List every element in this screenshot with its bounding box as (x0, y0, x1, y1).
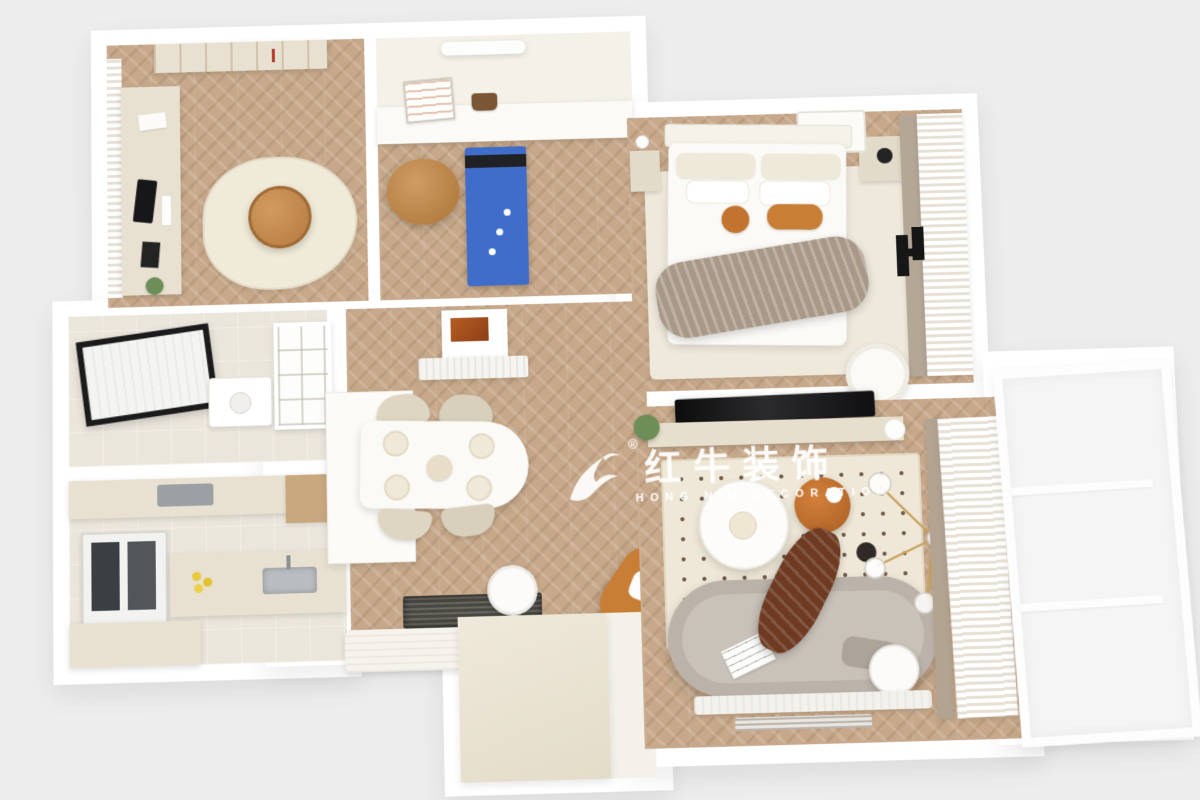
dining-chair (440, 503, 497, 539)
double-bed (663, 124, 852, 356)
framed-poster (403, 77, 456, 124)
place-setting (469, 433, 495, 459)
apartment-plan: ®红牛装饰 HONG NIU DECORATION (7, 0, 1200, 800)
multipurpose-floor (376, 31, 638, 300)
bedroom-floor (627, 109, 974, 392)
fridge-glass-panel (91, 542, 120, 611)
pillow-small (759, 181, 830, 207)
floor-vent (735, 714, 872, 731)
pillow-small (686, 180, 749, 204)
treadmill-dot (496, 228, 503, 235)
wash-basin (229, 392, 251, 414)
study-floor (107, 39, 369, 308)
handbag (471, 93, 497, 111)
sideboard-cabinet (377, 101, 633, 145)
air-conditioner (441, 40, 526, 56)
hongniu-logo-icon (560, 449, 626, 509)
bathroom-mirror (76, 323, 220, 427)
pillow (676, 153, 755, 179)
balcony-glazing (993, 359, 1200, 747)
range-hood (157, 483, 213, 507)
watermark-text-block: ®红牛装饰 HONG NIU DECORATION (634, 444, 891, 505)
nightstand-left (630, 150, 661, 192)
treadmill-bar (465, 154, 527, 168)
bean-bag (386, 158, 460, 226)
papers (138, 112, 167, 131)
watermark: ®红牛装饰 HONG NIU DECORATION (560, 424, 903, 525)
kitchen-floor (69, 474, 347, 669)
wall-radiator (418, 355, 528, 380)
floorplan-render: ®红牛装饰 HONG NIU DECORATION (0, 0, 1200, 800)
glazing-mullion (1011, 479, 1153, 496)
glass-door-fridge (81, 531, 168, 626)
kitchen-lower-counter (69, 620, 200, 668)
keyboard (161, 195, 172, 226)
orange-round-cushion (721, 206, 749, 234)
place-setting (384, 474, 410, 500)
entry-wardrobe (458, 613, 612, 783)
faucet (286, 555, 290, 569)
dining-table (360, 421, 529, 510)
glazing-mullion (1020, 595, 1163, 612)
bathroom-floor (68, 310, 329, 468)
treadmill-dot (489, 248, 496, 255)
watermark-title: 红牛装饰 (644, 443, 841, 489)
skylight-glass (450, 317, 488, 342)
desktop-monitor (133, 179, 158, 223)
pendant-lamp-left (635, 135, 649, 149)
kitchen-upper-counter (69, 474, 345, 520)
tv-wall-bracket (896, 227, 932, 283)
entry-floor (458, 612, 657, 783)
study-desk (121, 86, 182, 296)
place-setting (383, 431, 409, 457)
fridge-glass-panel (127, 541, 156, 610)
black-vase (877, 148, 893, 164)
kitchen-island-counter (170, 550, 347, 617)
registered-mark: ® (628, 437, 638, 452)
lemon (194, 584, 203, 593)
kitchen-sink (262, 567, 317, 595)
ceiling-skylight (441, 309, 508, 360)
desk-poster (141, 242, 161, 268)
study-bookshelf (154, 40, 327, 74)
bathroom-vanity (208, 376, 272, 427)
lemon (192, 572, 201, 581)
treadmill-dot (504, 209, 511, 216)
orange-lumbar-pillow (767, 204, 822, 230)
interior-grid-window (273, 321, 332, 429)
book-red (272, 49, 275, 63)
pillow (761, 153, 840, 179)
table-centerpiece (426, 455, 452, 481)
lemon (203, 578, 212, 587)
bracket-arm (902, 248, 924, 256)
treadmill (465, 146, 530, 286)
desk-plant (146, 277, 164, 295)
entry-bench-cushion (345, 627, 465, 673)
place-setting (466, 475, 492, 501)
